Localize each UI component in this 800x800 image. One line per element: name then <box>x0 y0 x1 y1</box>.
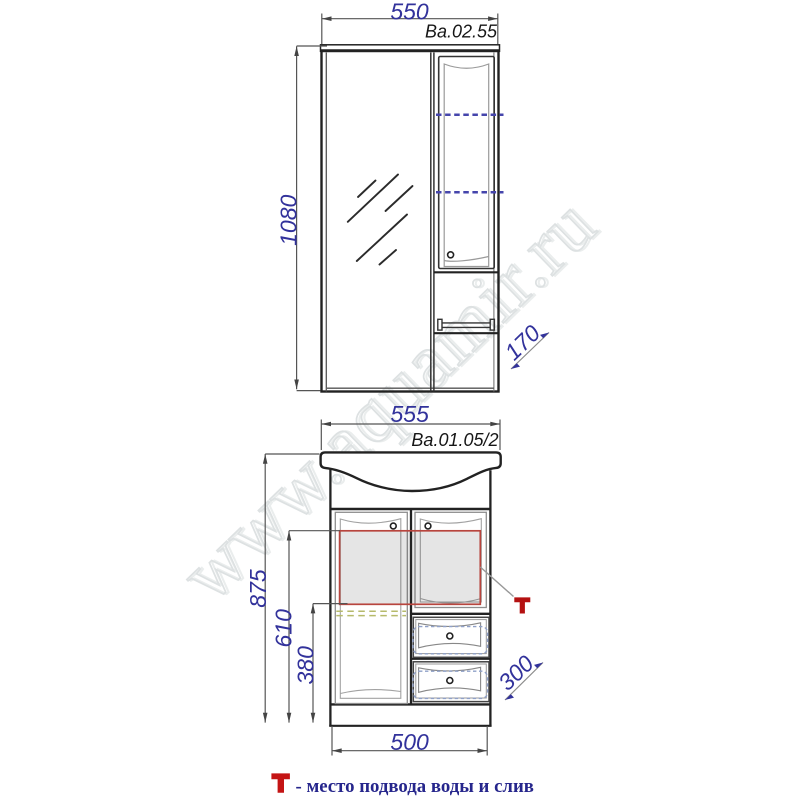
svg-text:Ba.01.05/2: Ba.01.05/2 <box>411 430 498 450</box>
svg-text:- место подвода воды и слив: - место подвода воды и слив <box>296 776 534 797</box>
svg-text:555: 555 <box>391 401 430 427</box>
svg-text:875: 875 <box>245 569 271 608</box>
svg-text:380: 380 <box>293 646 319 685</box>
svg-text:500: 500 <box>390 729 429 755</box>
svg-text:1080: 1080 <box>276 195 302 246</box>
svg-text:550: 550 <box>390 0 429 24</box>
svg-text:Ba.02.55: Ba.02.55 <box>425 22 498 42</box>
svg-text:610: 610 <box>271 609 297 648</box>
